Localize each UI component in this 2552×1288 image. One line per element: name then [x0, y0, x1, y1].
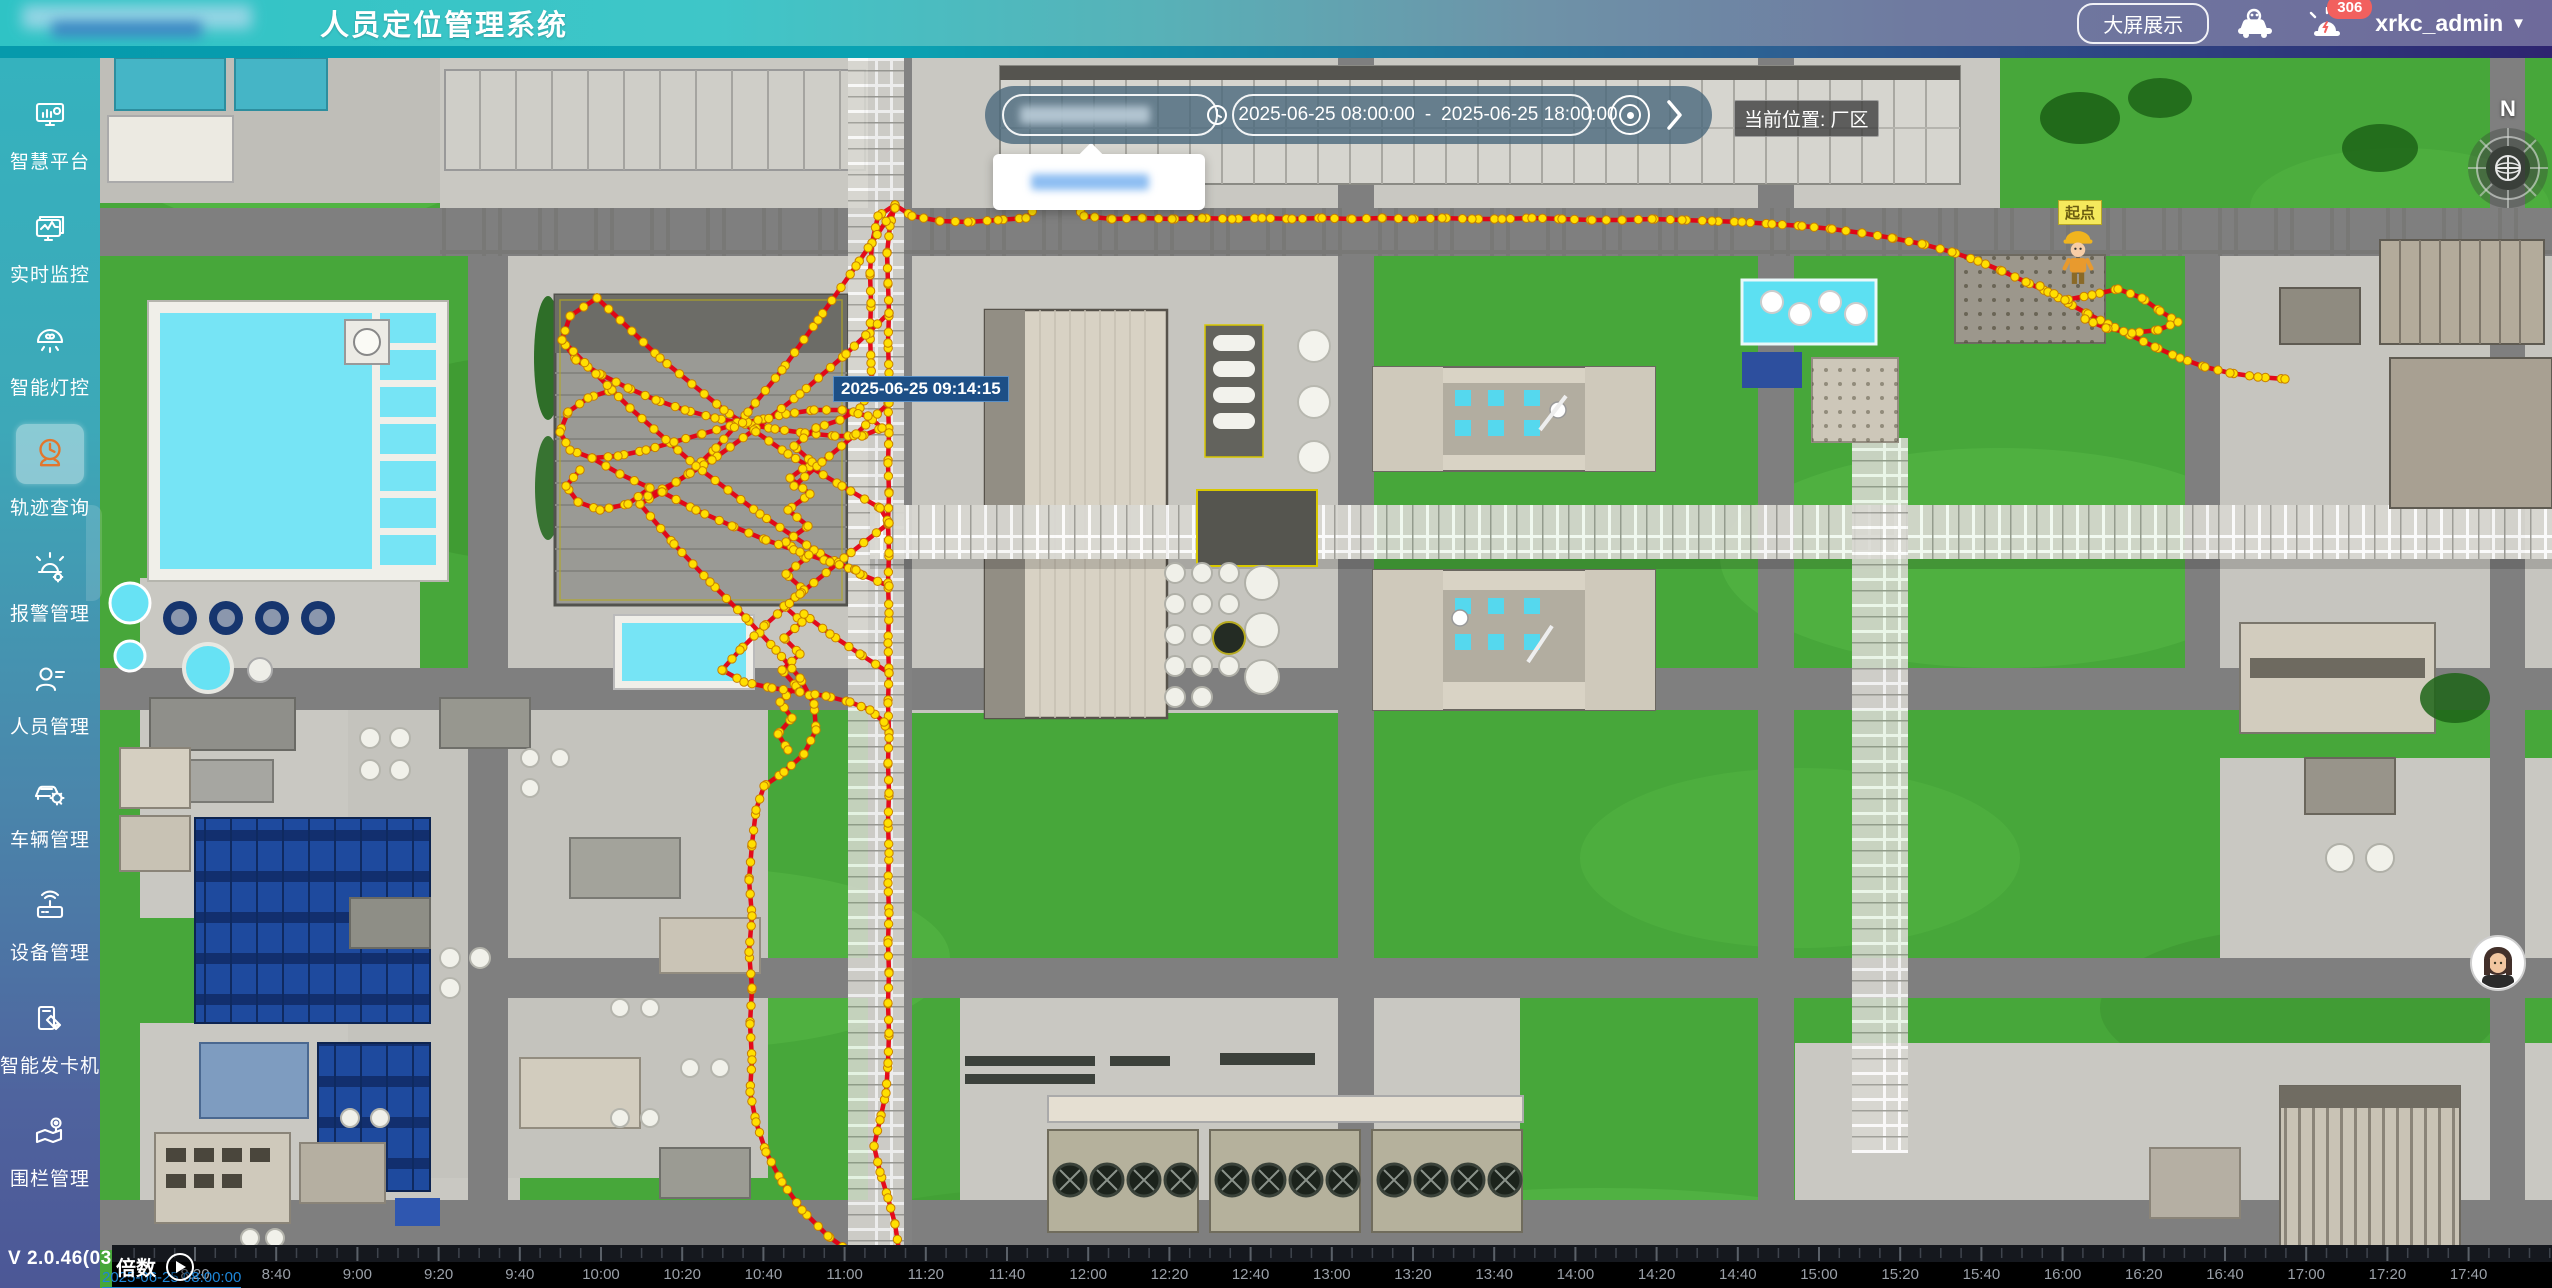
current-location-badge: 当前位置: 厂区: [1734, 100, 1879, 137]
svg-text:13:00: 13:00: [1313, 1266, 1351, 1283]
sidebar-item-label: 围栏管理: [10, 1164, 90, 1191]
sidebar-item-label: 智能发卡机: [0, 1051, 100, 1078]
clock-icon: [1206, 104, 1228, 126]
sidebar-item-label: 设备管理: [10, 938, 90, 965]
sidebar-item-realtime-monitor[interactable]: 实时监控: [0, 189, 100, 302]
compass-dial[interactable]: [2464, 124, 2552, 212]
start-point-badge: 起点: [2058, 200, 2102, 225]
app-logo: [22, 3, 272, 43]
sidebar-item-label: 智能灯控: [10, 373, 90, 400]
sidebar-item-smart-light[interactable]: 智能灯控: [0, 302, 100, 415]
svg-text:9:00: 9:00: [343, 1266, 372, 1283]
pipe-rack-horizontal: [870, 505, 2552, 559]
svg-text:15:40: 15:40: [1963, 1266, 2001, 1283]
redacted-search-text: [1020, 106, 1150, 124]
person-manage-icon: [23, 657, 77, 703]
sidebar-item-device-manage[interactable]: 设备管理: [0, 867, 100, 980]
svg-text:13:20: 13:20: [1394, 1266, 1432, 1283]
svg-text:14:20: 14:20: [1638, 1266, 1676, 1283]
alarm-bell-icon[interactable]: 306: [2305, 6, 2349, 40]
sidebar-item-label: 智慧平台: [10, 147, 90, 174]
worker-marker[interactable]: [2062, 226, 2094, 291]
svg-text:16:40: 16:40: [2206, 1266, 2244, 1283]
svg-text:16:00: 16:00: [2044, 1266, 2082, 1283]
username: xrkc_admin: [2375, 10, 2503, 37]
svg-text:11:00: 11:00: [826, 1266, 862, 1283]
app-root: 人员定位管理系统 大屏展示 306: [0, 0, 2552, 1288]
chevron-down-icon: ▼: [2511, 15, 2526, 32]
date-range-picker[interactable]: 2025-06-25 08:00:00 - 2025-06-25 18:00:0…: [1232, 94, 1592, 136]
svg-text:11:20: 11:20: [908, 1266, 944, 1283]
svg-text:17:00: 17:00: [2287, 1266, 2325, 1283]
svg-text:17:20: 17:20: [2369, 1266, 2407, 1283]
vehicle-icon[interactable]: [2235, 6, 2279, 40]
sidebar: 智慧平台 实时监控 智能灯控 轨迹查询: [0, 58, 100, 1288]
sidebar-item-label: 人员管理: [10, 712, 90, 739]
sidebar-item-alarm-manage[interactable]: 报警管理: [0, 528, 100, 641]
vehicle-manage-icon: [23, 770, 77, 816]
sidebar-item-label: 轨迹查询: [10, 493, 90, 520]
svg-text:16:20: 16:20: [2125, 1266, 2163, 1283]
redacted-suggestion-text: [1031, 174, 1149, 190]
dark-building: [1197, 490, 1317, 566]
timeline-track[interactable]: 8:208:409:009:209:4010:0010:2010:4011:00…: [112, 1245, 2552, 1288]
svg-text:9:40: 9:40: [505, 1266, 534, 1283]
realtime-monitor-icon: [23, 205, 77, 251]
alarm-manage-icon: [23, 544, 77, 590]
track-time-tooltip: 2025-06-25 09:14:15: [833, 376, 1009, 402]
track-query-icon: [16, 424, 84, 484]
svg-text:12:20: 12:20: [1151, 1266, 1189, 1283]
sidebar-item-track-query[interactable]: 轨迹查询: [0, 415, 100, 528]
sidebar-item-label: 实时监控: [10, 260, 90, 287]
app-header: 人员定位管理系统 大屏展示 306: [0, 0, 2552, 46]
date-start: 2025-06-25 08:00:00: [1238, 104, 1414, 126]
map-canvas[interactable]: 2025-06-25 08:00:00 - 2025-06-25 18:00:0…: [100, 58, 2552, 1288]
pipe-rack-vertical-right: [1852, 438, 1908, 1153]
alarm-count-badge: 306: [2327, 0, 2372, 19]
sidebar-item-card-dispenser[interactable]: 智能发卡机: [0, 980, 100, 1093]
svg-text:15:00: 15:00: [1800, 1266, 1838, 1283]
svg-text:9:20: 9:20: [424, 1266, 453, 1283]
sidebar-item-person-manage[interactable]: 人员管理: [0, 641, 100, 754]
svg-text:14:00: 14:00: [1557, 1266, 1595, 1283]
speed-multiplier-label: 倍数: [116, 1252, 156, 1281]
courtyard-building-b: [1373, 570, 1655, 710]
compass-north-label: N: [2464, 96, 2552, 122]
smart-light-icon: [23, 318, 77, 364]
search-suggestion-dropdown[interactable]: [993, 154, 1205, 210]
header-divider: [0, 46, 2552, 58]
svg-text:8:40: 8:40: [262, 1266, 291, 1283]
svg-text:12:40: 12:40: [1232, 1266, 1270, 1283]
svg-text:10:20: 10:20: [663, 1266, 701, 1283]
compass-control[interactable]: N: [2464, 96, 2552, 217]
sidebar-item-label: 车辆管理: [10, 825, 90, 852]
play-button[interactable]: [166, 1253, 194, 1281]
date-separator: -: [1425, 104, 1431, 126]
card-dispenser-icon: [23, 996, 77, 1042]
svg-text:14:40: 14:40: [1719, 1266, 1757, 1283]
locate-button[interactable]: [1610, 95, 1650, 135]
smart-platform-icon: [23, 92, 77, 138]
sidebar-item-vehicle-manage[interactable]: 车辆管理: [0, 754, 100, 867]
sidebar-item-fence-manage[interactable]: 围栏管理: [0, 1093, 100, 1206]
user-menu[interactable]: xrkc_admin ▼: [2375, 10, 2526, 37]
svg-text:12:00: 12:00: [1069, 1266, 1107, 1283]
search-input[interactable]: [1002, 94, 1218, 136]
timeline-bar[interactable]: 8:208:409:009:209:4010:0010:2010:4011:00…: [0, 1245, 2552, 1288]
page-title: 人员定位管理系统: [320, 2, 568, 44]
date-end: 2025-06-25 18:00:00: [1441, 104, 1617, 126]
sidebar-collapse-handle[interactable]: [86, 505, 102, 601]
svg-text:17:40: 17:40: [2450, 1266, 2488, 1283]
device-manage-icon: [23, 883, 77, 929]
svg-text:15:20: 15:20: [1881, 1266, 1919, 1283]
courtyard-building-a: [1373, 367, 1655, 471]
svg-text:11:40: 11:40: [989, 1266, 1025, 1283]
svg-text:13:40: 13:40: [1475, 1266, 1513, 1283]
map-scenery: [100, 58, 2552, 1288]
person-avatar-marker[interactable]: [2470, 935, 2526, 996]
query-arrow-button[interactable]: [1666, 99, 1684, 131]
cyan-pool: [148, 301, 448, 581]
svg-text:10:00: 10:00: [582, 1266, 620, 1283]
fence-manage-icon: [23, 1109, 77, 1155]
sidebar-item-label: 报警管理: [10, 599, 90, 626]
track-toolbar: 2025-06-25 08:00:00 - 2025-06-25 18:00:0…: [985, 86, 1712, 144]
svg-text:10:40: 10:40: [745, 1266, 783, 1283]
sidebar-item-smart-platform[interactable]: 智慧平台: [0, 76, 100, 189]
big-screen-button[interactable]: 大屏展示: [2077, 3, 2209, 44]
